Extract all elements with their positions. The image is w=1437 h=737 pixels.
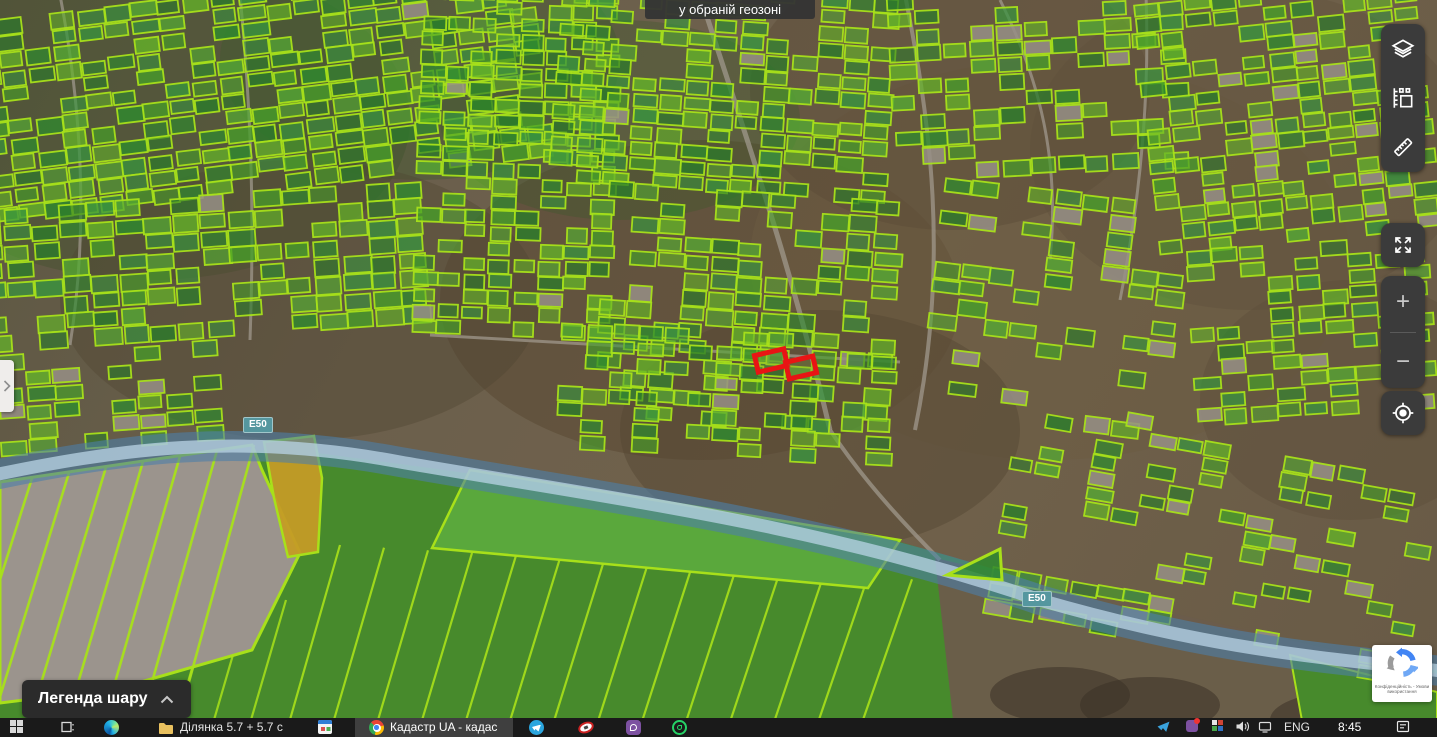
taskbar-item-folder[interactable]: Ділянка 5.7 + 5.7 с [158,718,283,737]
tray-app-icon [1212,720,1224,732]
task-view-button[interactable] [60,718,75,737]
measure-area-button[interactable] [1381,75,1425,121]
tray-viber-icon [1186,720,1198,732]
recaptcha-text-line2: використання [1372,689,1432,694]
layers-icon [1390,36,1416,62]
fullscreen-button[interactable] [1381,223,1425,267]
taskbar-app-viber[interactable] [626,718,641,737]
geozone-tooltip: у обраній геозоні [645,0,815,19]
zoom-in-button[interactable]: + [1381,276,1425,328]
taskbar-app-store[interactable] [318,718,332,737]
zoom-out-button[interactable]: − [1381,336,1425,388]
language-indicator: ENG [1284,720,1310,735]
map-tools-panel [1381,24,1425,172]
notifications-icon [1396,720,1410,733]
viber-icon [626,720,641,735]
taskbar-app-red-ellipse[interactable] [578,718,594,737]
zoom-panel-divider [1390,332,1416,333]
taskbar-item-active-browser[interactable]: Кадастр UA - кадас [369,718,497,737]
map-canvas[interactable] [0,0,1437,737]
road-label-e50-west: E50 [243,417,273,433]
tray-clock[interactable]: 8:45 [1338,718,1361,737]
locate-me-button[interactable] [1381,391,1425,435]
network-icon [1258,720,1273,733]
chevron-right-icon [1,379,13,393]
chevron-up-icon [159,694,175,705]
geozone-tooltip-text: у обраній геозоні [679,2,781,17]
layer-legend-label: Легенда шару [38,690,148,708]
telegram-icon [529,720,544,735]
tray-volume[interactable] [1235,718,1250,737]
fullscreen-icon [1391,233,1415,257]
locate-panel [1381,391,1425,435]
tray-network[interactable] [1258,718,1273,737]
tray-telegram-icon [1157,720,1170,733]
clock-time: 8:45 [1338,720,1361,735]
taskbar-app-edge[interactable] [104,718,119,737]
sidebar-expand-toggle[interactable] [0,360,14,412]
measure-distance-button[interactable] [1381,124,1425,170]
zoom-panel: + − [1381,276,1425,388]
red-ellipse-app-icon [577,719,596,735]
tray-telegram[interactable] [1157,718,1170,737]
taskbar-app-telegram[interactable] [529,718,544,737]
layer-legend-toggle[interactable]: Легенда шару [22,680,191,718]
action-center-button[interactable] [1396,718,1410,737]
taskbar: Ділянка 5.7 + 5.7 с Кадастр UA - кадас [0,718,1437,737]
chrome-icon [369,720,384,735]
tray-app[interactable] [1212,718,1224,737]
recaptcha-badge[interactable]: Конфіденційність - Умови використання [1372,645,1432,702]
whatsapp-icon [672,720,687,735]
start-button[interactable] [10,718,23,737]
active-window-label: Кадастр UA - кадас [390,720,497,735]
measure-area-icon [1390,85,1416,111]
store-app-icon [318,720,332,734]
road-label-e50-east: E50 [1022,591,1052,607]
ruler-icon [1390,134,1416,160]
locate-icon [1390,400,1416,426]
folder-icon [158,720,174,735]
volume-icon [1235,720,1250,733]
fullscreen-panel [1381,223,1425,267]
folder-item-label: Ділянка 5.7 + 5.7 с [180,720,283,735]
layers-button[interactable] [1381,26,1425,72]
task-view-icon [60,720,75,734]
taskbar-app-whatsapp[interactable] [672,718,687,737]
tray-language[interactable]: ENG [1284,718,1310,737]
edge-icon [104,720,119,735]
tray-viber[interactable] [1186,718,1198,737]
app-window: у обраній геозоні E50 E50 [0,0,1437,737]
windows-logo-icon [10,720,23,733]
recaptcha-icon [1386,647,1418,679]
